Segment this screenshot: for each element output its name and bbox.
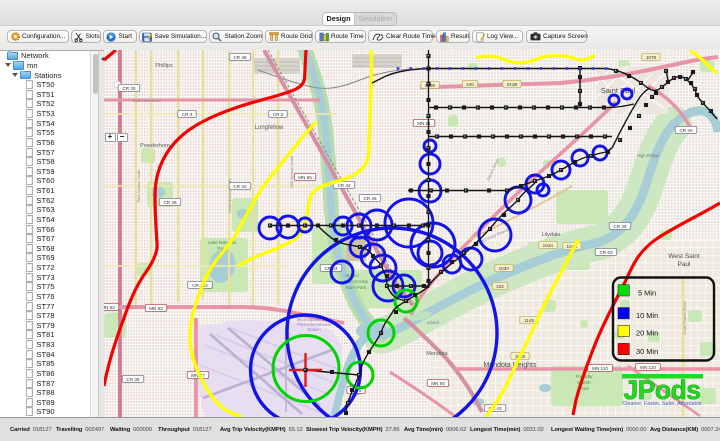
svg-text:High Bridge: High Bridge [637,153,660,158]
svg-text:West Saint: West Saint [668,253,700,260]
svg-text:Island: Island [427,320,440,325]
svg-text:CR 42: CR 42 [233,184,246,189]
svg-text:103A: 103A [499,266,511,271]
svg-text:CR 46: CR 46 [363,196,376,201]
svg-text:30 Min: 30 Min [636,347,658,356]
svg-text:1078: 1078 [646,55,657,60]
svg-text:Lilydale: Lilydale [542,232,561,238]
svg-text:Powderhorn: Powderhorn [140,143,170,149]
svg-text:CR 46: CR 46 [163,200,176,205]
svg-text:East Lake Street: East Lake Street [133,99,162,103]
svg-text:Mendota: Mendota [426,351,448,357]
svg-text:28th Avenue South: 28th Avenue South [290,156,294,188]
svg-text:Paul: Paul [677,261,691,268]
svg-text:MN 110: MN 110 [592,366,608,371]
svg-text:CR 48: CR 48 [233,55,246,60]
svg-text:CR 35: CR 35 [126,377,139,382]
svg-text:CR 42: CR 42 [337,183,350,188]
svg-text:MN 55: MN 55 [298,175,312,180]
svg-text:CR 63: CR 63 [599,250,612,255]
svg-text:MN 55: MN 55 [431,381,445,386]
svg-text:CR 3: CR 3 [182,112,193,117]
svg-text:5 Min: 5 Min [638,288,656,297]
svg-text:CR 35: CR 35 [122,86,135,91]
svg-text:20 Min: 20 Min [636,329,658,338]
svg-text:104A: 104A [543,243,555,248]
svg-text:MN 62: MN 62 [104,305,115,310]
svg-text:1149: 1149 [524,318,534,323]
svg-text:240: 240 [466,82,474,87]
svg-text:Cleaner, Faster, Safer, Afford: Cleaner, Faster, Safer, Affordable [622,401,701,407]
svg-text:102: 102 [496,284,504,289]
svg-text:MN 62: MN 62 [149,306,163,311]
svg-text:MN 110: MN 110 [640,365,656,370]
svg-text:CR 40: CR 40 [679,128,692,133]
svg-text:Farm Park: Farm Park [346,285,367,290]
svg-text:Longfellow: Longfellow [255,125,284,131]
svg-text:Station: Station [307,327,321,332]
svg-text:10 Min: 10 Min [636,311,658,320]
svg-text:Phillips: Phillips [155,63,173,69]
svg-text:South Robert Street: South Robert Street [683,300,687,335]
svg-text:241B: 241B [507,82,518,87]
svg-text:CR 46: CR 46 [613,224,626,229]
svg-text:CR 3: CR 3 [273,112,284,117]
svg-text:Park Avenue South: Park Avenue South [137,170,141,202]
